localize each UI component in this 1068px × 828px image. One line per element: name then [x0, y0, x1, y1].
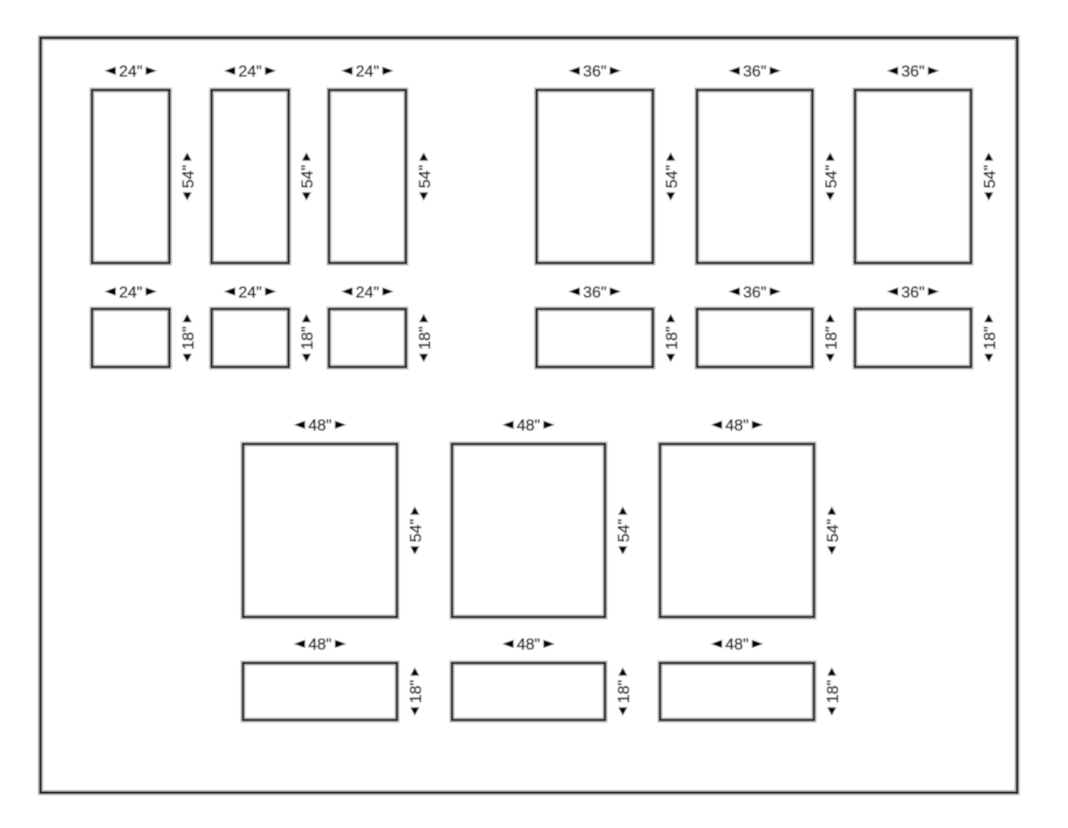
svg-text:24": 24" — [119, 284, 142, 301]
svg-text:48": 48" — [308, 418, 331, 435]
svg-text:24": 24" — [119, 64, 142, 81]
svg-text:24": 24" — [238, 284, 261, 301]
svg-text:54": 54" — [824, 165, 841, 188]
svg-text:24": 24" — [356, 64, 379, 81]
svg-text:18": 18" — [664, 326, 681, 349]
svg-text:36": 36" — [743, 64, 766, 81]
svg-text:36": 36" — [583, 64, 606, 81]
svg-text:18": 18" — [300, 326, 317, 349]
svg-text:24": 24" — [356, 284, 379, 301]
svg-text:48": 48" — [725, 637, 748, 654]
svg-text:54": 54" — [300, 165, 317, 188]
svg-text:54": 54" — [181, 165, 198, 188]
svg-text:36": 36" — [901, 284, 924, 301]
svg-text:24": 24" — [238, 64, 261, 81]
svg-text:54": 54" — [417, 165, 434, 188]
svg-text:48": 48" — [517, 637, 540, 654]
svg-text:18": 18" — [408, 680, 425, 703]
svg-text:48": 48" — [725, 418, 748, 435]
svg-text:54": 54" — [616, 519, 633, 542]
svg-text:36": 36" — [583, 284, 606, 301]
svg-text:36": 36" — [901, 64, 924, 81]
svg-text:18": 18" — [825, 680, 842, 703]
svg-text:48": 48" — [517, 418, 540, 435]
svg-text:18": 18" — [824, 326, 841, 349]
svg-text:54": 54" — [982, 165, 999, 188]
svg-text:54": 54" — [408, 519, 425, 542]
svg-text:18": 18" — [181, 326, 198, 349]
svg-text:18": 18" — [982, 326, 999, 349]
svg-text:18": 18" — [417, 326, 434, 349]
svg-text:18": 18" — [616, 680, 633, 703]
svg-text:36": 36" — [743, 284, 766, 301]
svg-text:48": 48" — [308, 637, 331, 654]
svg-text:54": 54" — [664, 165, 681, 188]
svg-text:54": 54" — [825, 519, 842, 542]
